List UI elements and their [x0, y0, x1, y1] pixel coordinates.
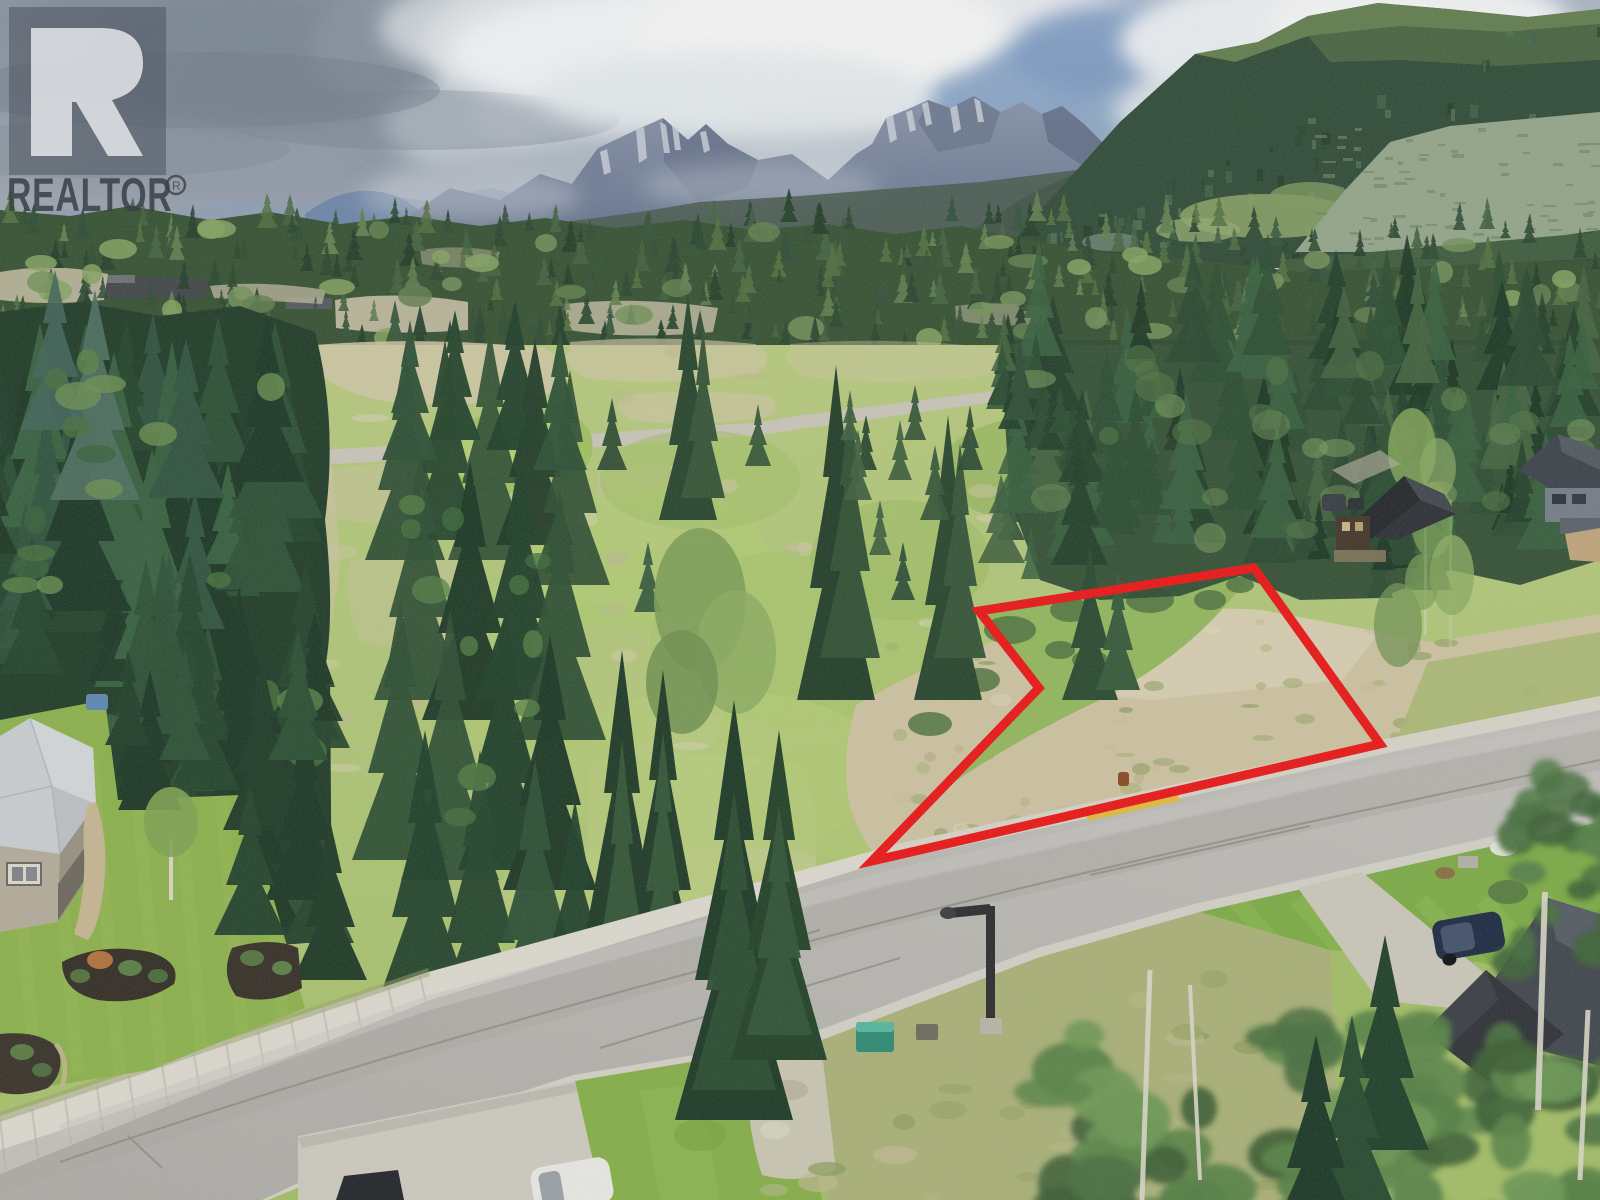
svg-text:R: R	[172, 179, 181, 193]
svg-text:REALTOR: REALTOR	[7, 169, 172, 222]
